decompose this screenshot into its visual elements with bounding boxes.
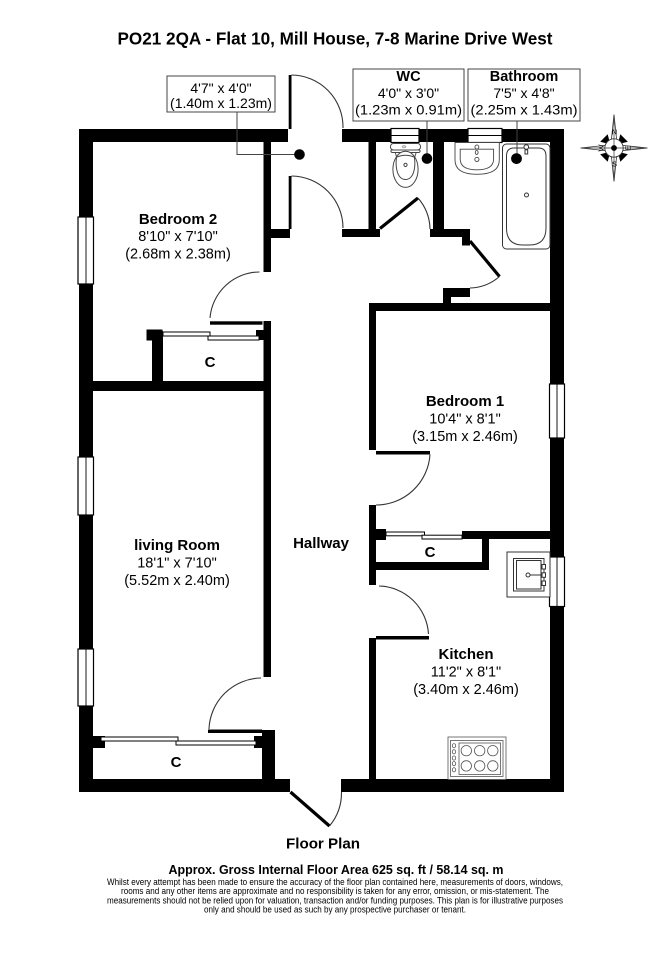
svg-text:(2.68m x 2.38m): (2.68m x 2.38m): [125, 247, 231, 263]
svg-text:Bedroom 1: Bedroom 1: [426, 393, 504, 410]
svg-text:Floor Plan: Floor Plan: [286, 837, 360, 853]
svg-text:Bathroom: Bathroom: [490, 69, 558, 85]
svg-text:10'4" x 8'1": 10'4" x 8'1": [429, 412, 500, 428]
svg-text:only and should be used as suc: only and should be used as such by any p…: [204, 905, 466, 915]
svg-text:S: S: [612, 160, 617, 169]
svg-text:(1.23m x 0.91m): (1.23m x 0.91m): [355, 102, 462, 118]
svg-text:E: E: [624, 145, 633, 150]
svg-text:WC: WC: [396, 69, 421, 85]
svg-text:(3.40m x 2.46m): (3.40m x 2.46m): [413, 682, 519, 698]
svg-text:(2.25m x 1.43m): (2.25m x 1.43m): [471, 102, 578, 118]
svg-text:Approx. Gross Internal Floor A: Approx. Gross Internal Floor Area 625 sq…: [169, 862, 504, 877]
svg-text:Kitchen: Kitchen: [438, 646, 493, 663]
svg-text:(1.40m x 1.23m): (1.40m x 1.23m): [170, 95, 272, 111]
svg-text:(3.15m x 2.46m): (3.15m x 2.46m): [412, 429, 518, 445]
svg-text:N: N: [612, 128, 617, 137]
svg-text:8'10" x 7'10": 8'10" x 7'10": [138, 229, 218, 245]
svg-text:7'5" x 4'8": 7'5" x 4'8": [493, 85, 554, 101]
svg-text:living Room: living Room: [134, 537, 220, 554]
svg-text:C: C: [205, 354, 216, 371]
svg-text:C: C: [425, 544, 436, 561]
svg-text:(5.52m x 2.40m): (5.52m x 2.40m): [124, 573, 230, 589]
svg-text:C: C: [171, 754, 182, 771]
svg-text:4'0" x 3'0": 4'0" x 3'0": [378, 85, 439, 101]
svg-text:Bedroom 2: Bedroom 2: [139, 211, 217, 228]
svg-text:18'1" x 7'10": 18'1" x 7'10": [137, 556, 217, 572]
svg-text:PO21 2QA - Flat 10, Mill House: PO21 2QA - Flat 10, Mill House, 7-8 Mari…: [118, 29, 553, 49]
svg-text:11'2" x 8'1": 11'2" x 8'1": [431, 665, 501, 681]
svg-text:W: W: [597, 144, 606, 152]
svg-text:4'7" x 4'0": 4'7" x 4'0": [190, 80, 251, 96]
svg-text:Hallway: Hallway: [293, 535, 350, 552]
